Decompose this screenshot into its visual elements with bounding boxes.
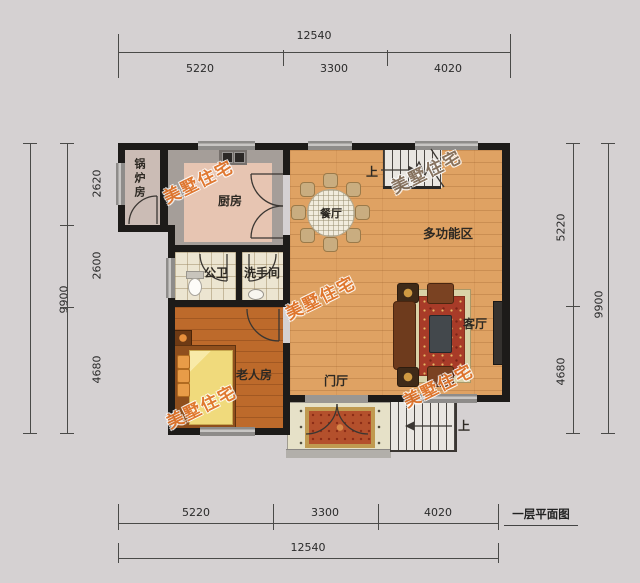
dimension-tick bbox=[60, 433, 74, 434]
dimension-tick bbox=[118, 504, 119, 530]
wall bbox=[502, 143, 510, 402]
kitchen-label: 厨房 bbox=[200, 192, 260, 209]
dining-table: 餐厅 bbox=[307, 189, 355, 237]
living-room-label: 客厅 bbox=[445, 315, 505, 332]
stairs-up-label-bottom: 上 bbox=[456, 417, 472, 434]
wall bbox=[168, 245, 290, 252]
dim-bottom-seg1: 5220 bbox=[166, 506, 226, 519]
dimension-tick bbox=[378, 504, 379, 530]
dimension-tick bbox=[510, 34, 511, 78]
dimension-tick bbox=[387, 50, 388, 66]
dim-top-seg1: 5220 bbox=[170, 62, 230, 75]
dining-chair bbox=[300, 228, 315, 243]
dimension-tick bbox=[60, 143, 74, 144]
stairs-up-label-top: 上 bbox=[364, 163, 380, 180]
dimension-tick bbox=[601, 433, 615, 434]
dimension-tick bbox=[498, 543, 499, 563]
dining-chair bbox=[300, 182, 315, 197]
dining-chair bbox=[355, 205, 370, 220]
dim-left-total: 9900 bbox=[58, 280, 71, 320]
dining-chair bbox=[346, 182, 361, 197]
dimension-tick bbox=[283, 50, 284, 66]
pillow bbox=[177, 355, 190, 369]
dimension-line bbox=[118, 52, 510, 53]
foyer-label: 门厅 bbox=[306, 372, 366, 389]
dim-left-seg3: 4680 bbox=[91, 350, 104, 390]
dimension-line bbox=[118, 558, 498, 559]
dim-top-seg3: 4020 bbox=[418, 62, 478, 75]
dimension-tick bbox=[60, 307, 74, 308]
dimension-tick bbox=[273, 504, 274, 530]
dimension-line bbox=[30, 143, 31, 433]
window bbox=[198, 141, 255, 150]
window bbox=[116, 163, 125, 205]
doormat bbox=[305, 407, 375, 448]
dimension-tick bbox=[118, 34, 119, 78]
dim-right-seg2: 4680 bbox=[555, 352, 568, 392]
dim-bottom-total: 12540 bbox=[258, 541, 358, 554]
dining-chair bbox=[346, 228, 361, 243]
dining-chair bbox=[291, 205, 306, 220]
dim-right-seg1: 5220 bbox=[555, 208, 568, 248]
dim-top-seg2: 3300 bbox=[304, 62, 364, 75]
dimension-line bbox=[118, 523, 498, 524]
dimension-tick bbox=[23, 143, 37, 144]
end-table bbox=[397, 283, 419, 303]
wall bbox=[168, 300, 290, 307]
exterior-stairs bbox=[390, 402, 457, 452]
dim-top-total: 12540 bbox=[264, 29, 364, 42]
dimension-tick bbox=[601, 143, 615, 144]
multi-area-label: 多功能区 bbox=[408, 223, 488, 242]
window bbox=[308, 141, 352, 150]
wall bbox=[283, 143, 290, 175]
wall bbox=[283, 343, 290, 435]
dimension-line bbox=[573, 143, 574, 433]
dimension-tick bbox=[566, 143, 580, 144]
dining-chair bbox=[323, 237, 338, 252]
elderly-room-label: 老人房 bbox=[224, 366, 284, 383]
dimension-tick bbox=[566, 306, 580, 307]
dining-chair bbox=[323, 173, 338, 188]
dimension-tick bbox=[566, 433, 580, 434]
dim-bottom-seg2: 3300 bbox=[295, 506, 355, 519]
pillow bbox=[177, 383, 190, 397]
dim-right-total: 9900 bbox=[593, 285, 606, 325]
pillow bbox=[177, 369, 190, 383]
boiler-room-label: 锅炉房 bbox=[131, 158, 147, 200]
dimension-tick bbox=[60, 225, 74, 226]
entry-door-sill bbox=[305, 395, 368, 403]
window bbox=[166, 258, 175, 298]
dimension-line bbox=[608, 143, 609, 433]
dim-bottom-seg3: 4020 bbox=[408, 506, 468, 519]
plan-title: 一层平面图 bbox=[504, 506, 578, 526]
armchair bbox=[427, 283, 454, 304]
nightstand bbox=[174, 330, 192, 346]
dimension-tick bbox=[498, 504, 499, 530]
sink bbox=[248, 289, 264, 300]
floor-plan-page: 餐厅 bbox=[0, 0, 640, 583]
wall bbox=[283, 395, 305, 402]
dimension-tick bbox=[118, 543, 119, 563]
dining-room-label: 餐厅 bbox=[320, 205, 342, 221]
dimension-tick bbox=[23, 433, 37, 434]
porch-step bbox=[286, 449, 391, 458]
dimension-line bbox=[67, 143, 68, 433]
sofa bbox=[393, 301, 416, 370]
stove-burner bbox=[234, 152, 245, 163]
washroom-label: 洗手间 bbox=[232, 264, 292, 281]
window bbox=[200, 427, 255, 436]
dim-left-seg2: 2600 bbox=[91, 246, 104, 286]
dim-left-seg1: 2620 bbox=[91, 164, 104, 204]
